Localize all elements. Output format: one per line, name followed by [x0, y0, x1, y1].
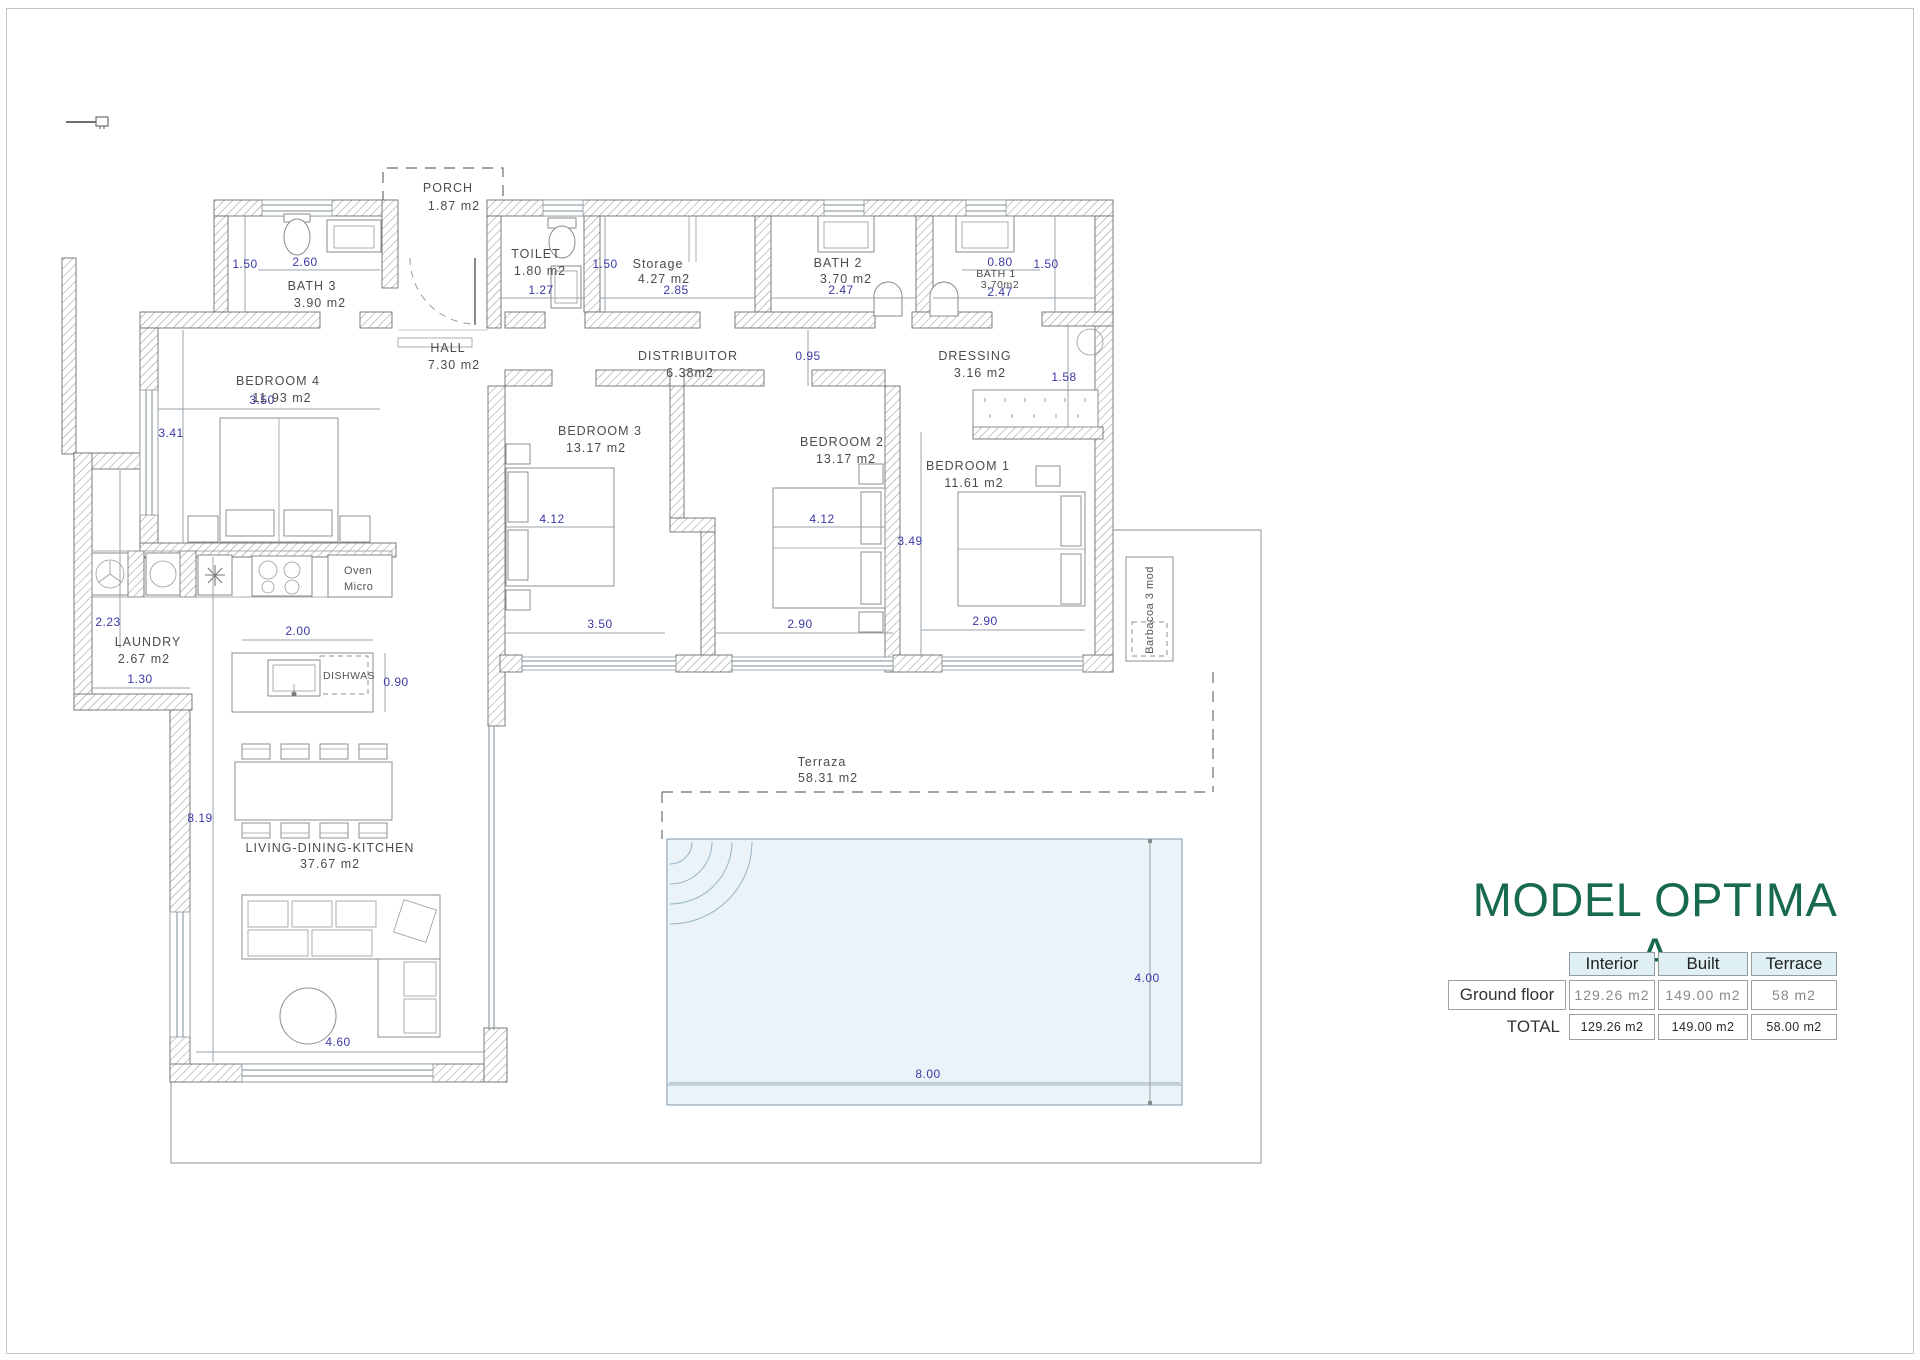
dim-island-depth: 0.90 — [383, 675, 408, 689]
dim-dressing: 1.58 — [1051, 370, 1076, 384]
total-built: 149.00 m2 — [1658, 1014, 1748, 1040]
window-bath2 — [824, 200, 864, 216]
window-living-left — [170, 912, 190, 1037]
ground-floor-terrace: 58 m2 — [1751, 980, 1837, 1010]
dim-bedroom1-width: 2.90 — [972, 614, 997, 628]
floor-plan-canvas: 1.50 2.60 1.27 1.50 2.85 2.47 0.80 1.50 … — [0, 0, 1920, 1360]
slider-bedroom3 — [522, 657, 676, 670]
col-header-interior: Interior — [1569, 952, 1655, 976]
label-bath2-area: 3.70 m2 — [820, 272, 872, 286]
row-label-total: TOTAL — [1448, 1014, 1566, 1040]
bath3-fixtures — [284, 214, 381, 255]
cooktop — [252, 556, 312, 596]
dressing-wardrobe — [973, 390, 1098, 427]
bedroom2-bed — [773, 464, 885, 632]
total-terrace: 58.00 m2 — [1751, 1014, 1837, 1040]
dim-bedroom3-bed: 4.12 — [539, 512, 564, 526]
total-interior: 129.26 m2 — [1569, 1014, 1655, 1040]
dim-bedroom4-height: 3.41 — [158, 426, 183, 440]
window-bath1 — [966, 200, 1006, 216]
dim-bath3-width: 1.50 — [232, 257, 257, 271]
dim-bedroom3-width: 3.50 — [587, 617, 612, 631]
ground-floor-interior: 129.26 m2 — [1569, 980, 1655, 1010]
island-sink — [268, 660, 320, 697]
window-bedroom4 — [140, 390, 158, 515]
label-bath3: BATH 3 — [288, 279, 337, 293]
dim-toilet-width: 1.27 — [528, 283, 553, 297]
washing-machine — [92, 553, 128, 595]
slider-bedroom1 — [942, 657, 1083, 670]
dim-bedroom2-width: 2.90 — [787, 617, 812, 631]
label-porch-area: 1.87 m2 — [428, 199, 480, 213]
dim-bedroom2-bed: 4.12 — [809, 512, 834, 526]
summary-table: Interior Built Terrace Ground floor 129.… — [1448, 952, 1837, 1040]
dim-bath3-length: 2.60 — [292, 255, 317, 269]
kitchen-island — [232, 653, 373, 712]
label-dressing-area: 3.16 m2 — [954, 366, 1006, 380]
dim-corridor: 0.95 — [795, 349, 820, 363]
fridge — [198, 555, 232, 595]
storage-shelf — [689, 216, 696, 262]
label-bedroom2: BEDROOM 2 — [800, 435, 884, 449]
label-dishwasher: DISHWAS — [323, 670, 375, 682]
label-bedroom1-area: 11.61 m2 — [944, 476, 1003, 490]
label-porch: PORCH — [423, 181, 473, 195]
label-bath2: BATH 2 — [814, 256, 863, 270]
label-bedroom4-area: 11.93 m2 — [252, 391, 311, 405]
label-micro: Micro — [344, 581, 373, 593]
label-distribuitor-area: 6.38m2 — [666, 366, 714, 380]
dim-laundry-height: 2.23 — [95, 615, 120, 629]
dim-storage-height: 1.50 — [592, 257, 617, 271]
label-hall-area: 7.30 m2 — [428, 358, 480, 372]
dim-laundry-width: 1.30 — [127, 672, 152, 686]
label-dressing: DRESSING — [938, 349, 1011, 363]
col-header-terrace: Terrace — [1751, 952, 1837, 976]
slider-bedroom2 — [732, 657, 893, 670]
dim-living-height: 8.19 — [187, 811, 212, 825]
label-toilet: TOILET — [511, 247, 561, 261]
label-bath3-area: 3.90 m2 — [294, 296, 346, 310]
label-laundry: LAUNDRY — [115, 635, 182, 649]
floor-plan-sheet: 1.50 2.60 1.27 1.50 2.85 2.47 0.80 1.50 … — [0, 0, 1920, 1360]
dim-bath1-height: 1.50 — [1033, 257, 1058, 271]
table-corner — [1448, 952, 1566, 976]
sofa — [242, 895, 440, 1037]
label-barbecue: Barbacoa 3 mod — [1144, 566, 1156, 654]
label-terrace-area: 58.31 m2 — [798, 771, 858, 785]
label-toilet-area: 1.80 m2 — [514, 264, 566, 278]
dim-island-width: 2.00 — [285, 624, 310, 638]
bedroom4-bed — [188, 418, 370, 542]
label-terrace: Terraza — [798, 755, 847, 769]
swimming-pool — [667, 839, 1182, 1105]
row-label-ground-floor: Ground floor — [1448, 980, 1566, 1010]
label-distribuitor: DISTRIBUITOR — [638, 349, 738, 363]
fridge-snowflake-icon — [205, 565, 225, 586]
label-storage-area: 4.27 m2 — [638, 272, 690, 286]
dryer — [146, 553, 180, 595]
glass-wall-living — [489, 726, 494, 1030]
dim-pool-height: 4.00 — [1134, 971, 1159, 985]
label-laundry-area: 2.67 m2 — [118, 652, 170, 666]
label-bedroom1: BEDROOM 1 — [926, 459, 1010, 473]
label-living: LIVING-DINING-KITCHEN — [246, 841, 415, 855]
window-living-bottom — [242, 1064, 433, 1082]
ground-floor-built: 149.00 m2 — [1658, 980, 1748, 1010]
window-toilet — [543, 200, 583, 216]
entrance-door — [398, 258, 488, 330]
label-bedroom4: BEDROOM 4 — [236, 374, 320, 388]
label-bedroom3: BEDROOM 3 — [558, 424, 642, 438]
terrace-boundary — [662, 672, 1213, 839]
label-bath1-area: 3.70m2 — [981, 279, 1020, 291]
label-hall: HALL — [430, 341, 465, 355]
label-bedroom3-area: 13.17 m2 — [566, 441, 626, 455]
label-bedroom2-area: 13.17 m2 — [816, 452, 876, 466]
label-living-area: 37.67 m2 — [300, 857, 360, 871]
dim-pool-width: 8.00 — [915, 1067, 940, 1081]
dim-living-width: 4.60 — [325, 1035, 350, 1049]
col-header-built: Built — [1658, 952, 1748, 976]
dining-table — [235, 744, 392, 838]
dim-bedroom1-height: 3.49 — [897, 534, 922, 548]
label-oven: Oven — [344, 565, 372, 577]
dim-bath1-door: 0.80 — [987, 255, 1012, 269]
key-symbol — [66, 117, 108, 129]
label-storage: Storage — [633, 257, 684, 271]
